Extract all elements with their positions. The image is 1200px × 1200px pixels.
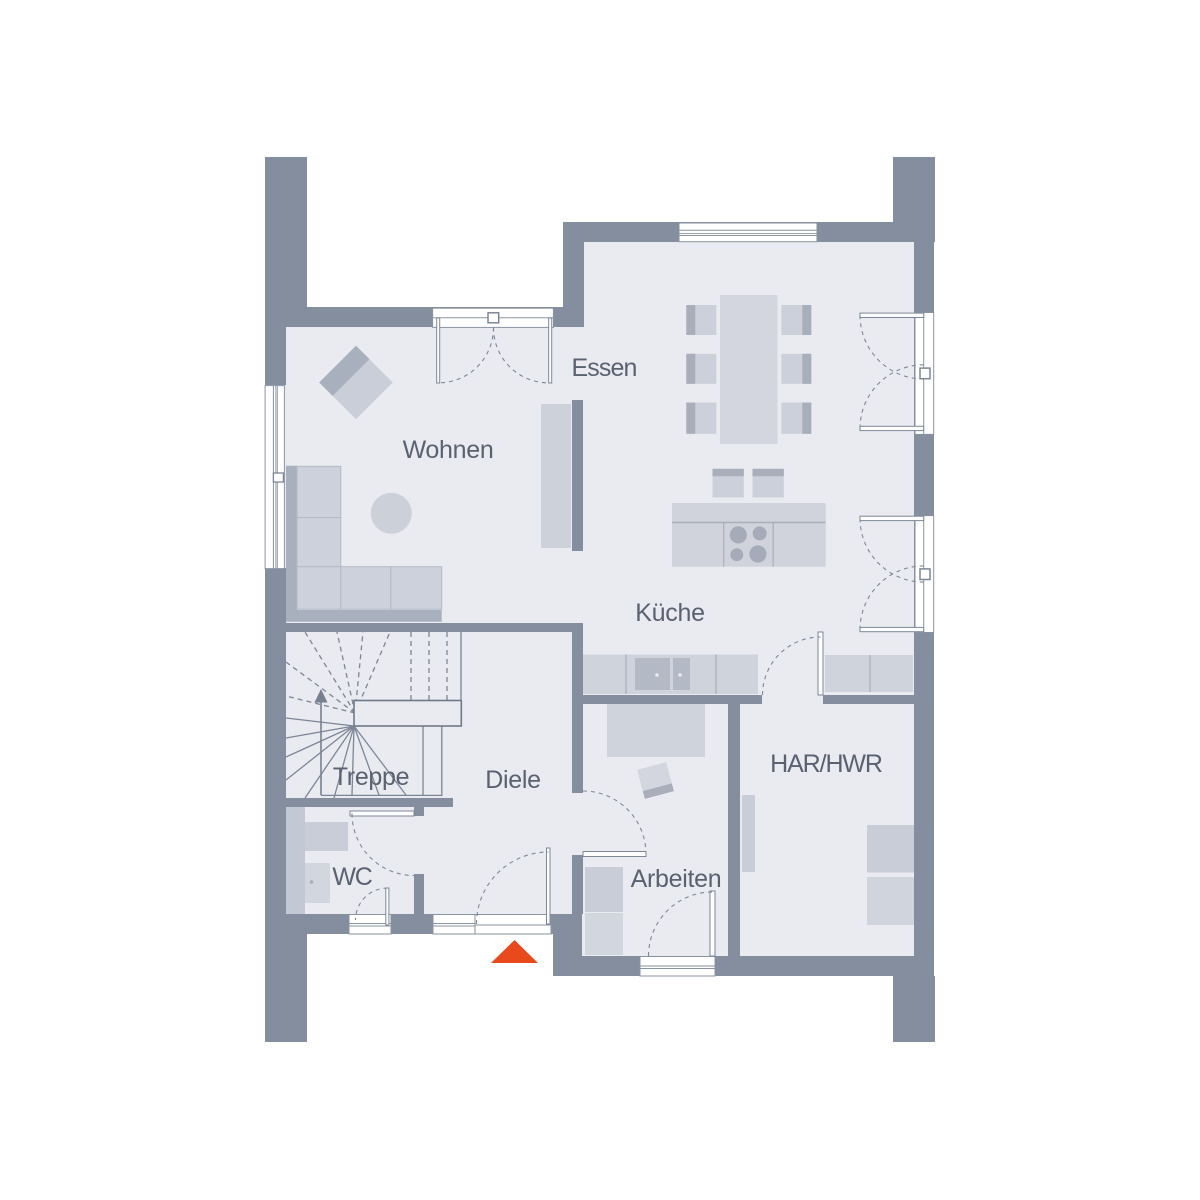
svg-text:Wohnen: Wohnen (403, 436, 494, 464)
svg-text:Arbeiten: Arbeiten (631, 865, 722, 893)
svg-text:Treppe: Treppe (333, 763, 409, 791)
svg-text:HAR/HWR: HAR/HWR (770, 750, 882, 778)
svg-text:Diele: Diele (485, 766, 540, 794)
svg-text:Essen: Essen (572, 354, 637, 382)
svg-text:WC: WC (332, 863, 372, 891)
svg-text:Küche: Küche (635, 599, 704, 627)
